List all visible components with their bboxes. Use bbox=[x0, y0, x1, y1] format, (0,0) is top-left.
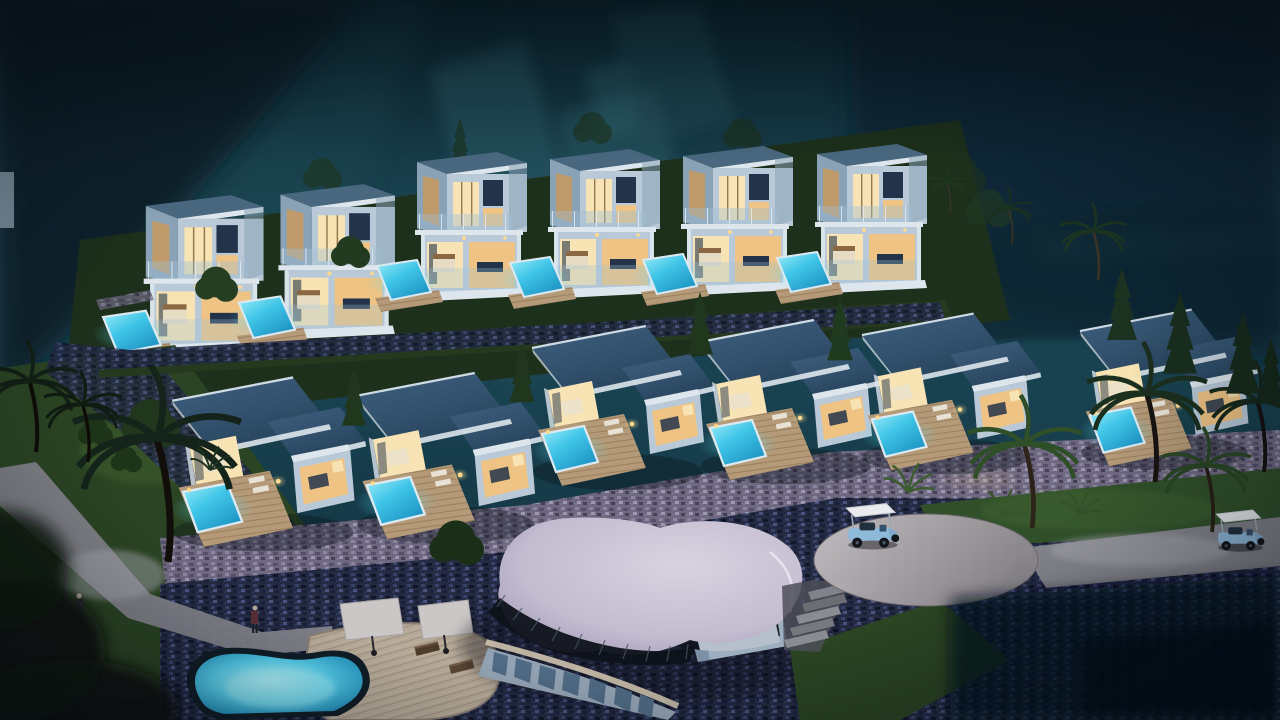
night-villa-resort-render bbox=[0, 0, 1280, 720]
top-shade bbox=[0, 0, 1280, 720]
